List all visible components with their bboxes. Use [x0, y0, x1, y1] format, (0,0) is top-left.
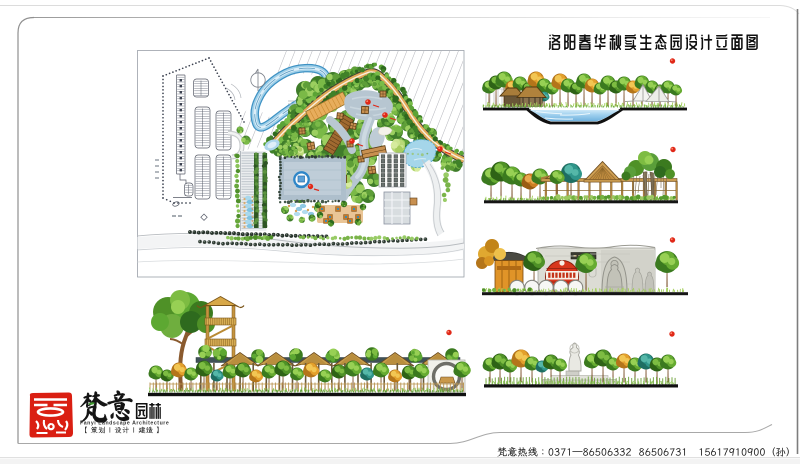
svg-text:【 策划 | 设计 | 建造 】: 【 策划 | 设计 | 建造 】 — [80, 427, 164, 436]
svg-text:梵意热线：0371—86506332 86506731: 梵意热线：0371—86506332 86506731 15617910900（… — [497, 445, 796, 459]
svg-text:洛阳春华秋实生态园设计立面图: 洛阳春华秋实生态园设计立面图 — [548, 33, 761, 51]
svg-text:园林: 园林 — [135, 402, 162, 420]
svg-text:意: 意 — [104, 389, 136, 421]
